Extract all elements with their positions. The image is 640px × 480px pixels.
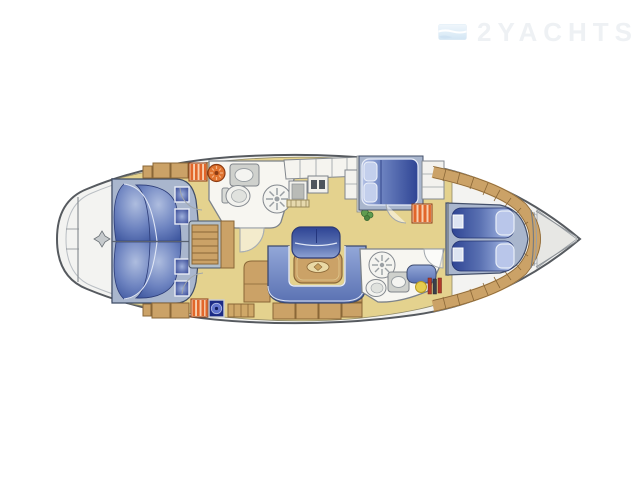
foot-cushion [453, 215, 463, 228]
floor-grate [228, 304, 254, 317]
pillow-square [175, 187, 189, 202]
yellow-stool [416, 282, 427, 293]
wood-locker [153, 163, 170, 178]
yacht-deck-plan [0, 0, 640, 480]
oven [289, 181, 307, 202]
bench-seat [292, 227, 340, 258]
companionway-cheek [221, 221, 234, 268]
wood-locker [152, 303, 170, 318]
toiletry-bars [428, 278, 442, 294]
companionway-steps [192, 225, 218, 264]
bow-anchor-locker [537, 210, 577, 268]
striped-dresser [189, 163, 207, 181]
washbasin [235, 169, 253, 182]
striped-dresser [191, 299, 208, 317]
forward-head [360, 249, 444, 302]
compass-instrument [209, 300, 224, 317]
aft-berth-port [114, 184, 189, 241]
double-sink [308, 176, 328, 193]
pillow [496, 211, 514, 235]
pillow [496, 244, 514, 268]
shower-fan-circle [263, 185, 291, 213]
nav-desk [244, 261, 270, 302]
toilet-bowl [371, 283, 383, 293]
wood-locker [143, 166, 152, 178]
striped-dresser [412, 204, 432, 223]
pillow [364, 162, 377, 181]
pillow [364, 183, 377, 202]
wood-locker [143, 304, 151, 316]
hatched-grate [287, 200, 309, 207]
wood-locker [171, 303, 189, 318]
aft-berth-starboard [114, 242, 189, 299]
yacht-plan-page: 2YACHTS [0, 0, 640, 480]
foot-cushion [453, 248, 463, 261]
washbasin-unit [388, 272, 409, 292]
logo-text: 2YACHTS [477, 17, 638, 48]
winch-round-fixture [208, 165, 225, 182]
logo-wave-flag-icon [438, 15, 467, 49]
toilet-bowl [232, 190, 247, 203]
wood-locker [171, 163, 188, 178]
pillow-square [175, 209, 189, 224]
logo: 2YACHTS [438, 14, 638, 50]
companionway [189, 221, 234, 268]
pillow-square [175, 259, 189, 274]
